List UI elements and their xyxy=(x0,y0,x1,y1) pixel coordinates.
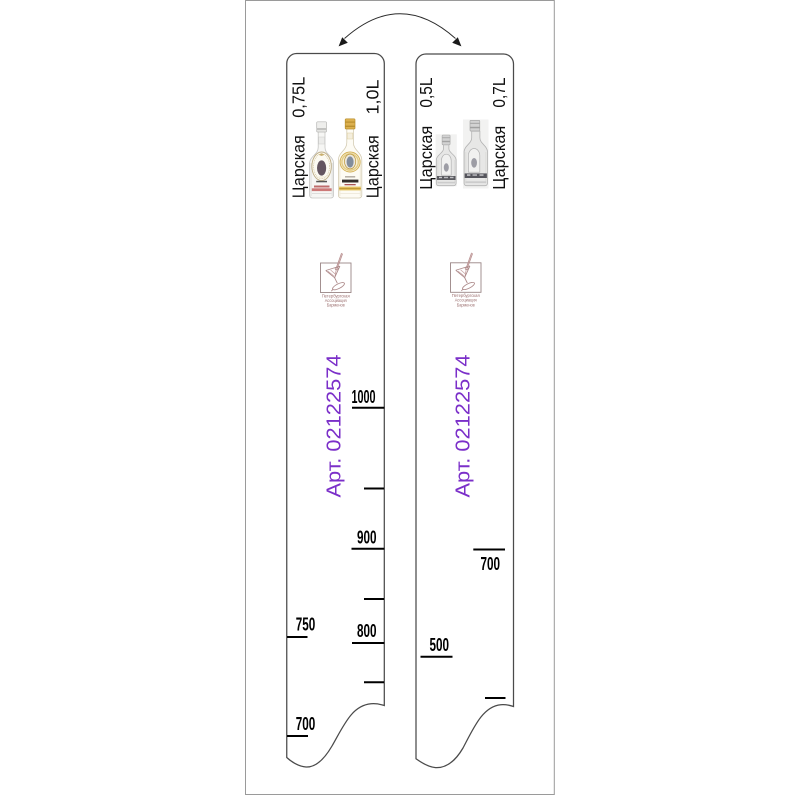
svg-text:1000: 1000 xyxy=(352,387,376,407)
svg-text:Царская: Царская xyxy=(289,135,309,198)
svg-text:0,5L: 0,5L xyxy=(416,78,436,108)
svg-text:Барменов: Барменов xyxy=(327,303,346,308)
svg-text:500: 500 xyxy=(430,635,450,655)
svg-text:Арт. 02122574: Арт. 02122574 xyxy=(324,355,346,498)
svg-text:Царская: Царская xyxy=(489,126,509,190)
svg-text:700: 700 xyxy=(296,714,316,734)
svg-text:900: 900 xyxy=(357,527,377,547)
svg-text:Царская: Царская xyxy=(416,126,436,190)
svg-text:0,7L: 0,7L xyxy=(489,78,509,108)
svg-text:Царская: Царская xyxy=(363,135,383,198)
svg-text:700: 700 xyxy=(481,554,501,574)
svg-text:0,75L: 0,75L xyxy=(289,77,309,118)
svg-text:800: 800 xyxy=(357,621,377,641)
svg-text:1,0L: 1,0L xyxy=(363,80,383,115)
svg-text:750: 750 xyxy=(296,614,316,634)
svg-text:Арт. 02122574: Арт. 02122574 xyxy=(453,355,475,498)
